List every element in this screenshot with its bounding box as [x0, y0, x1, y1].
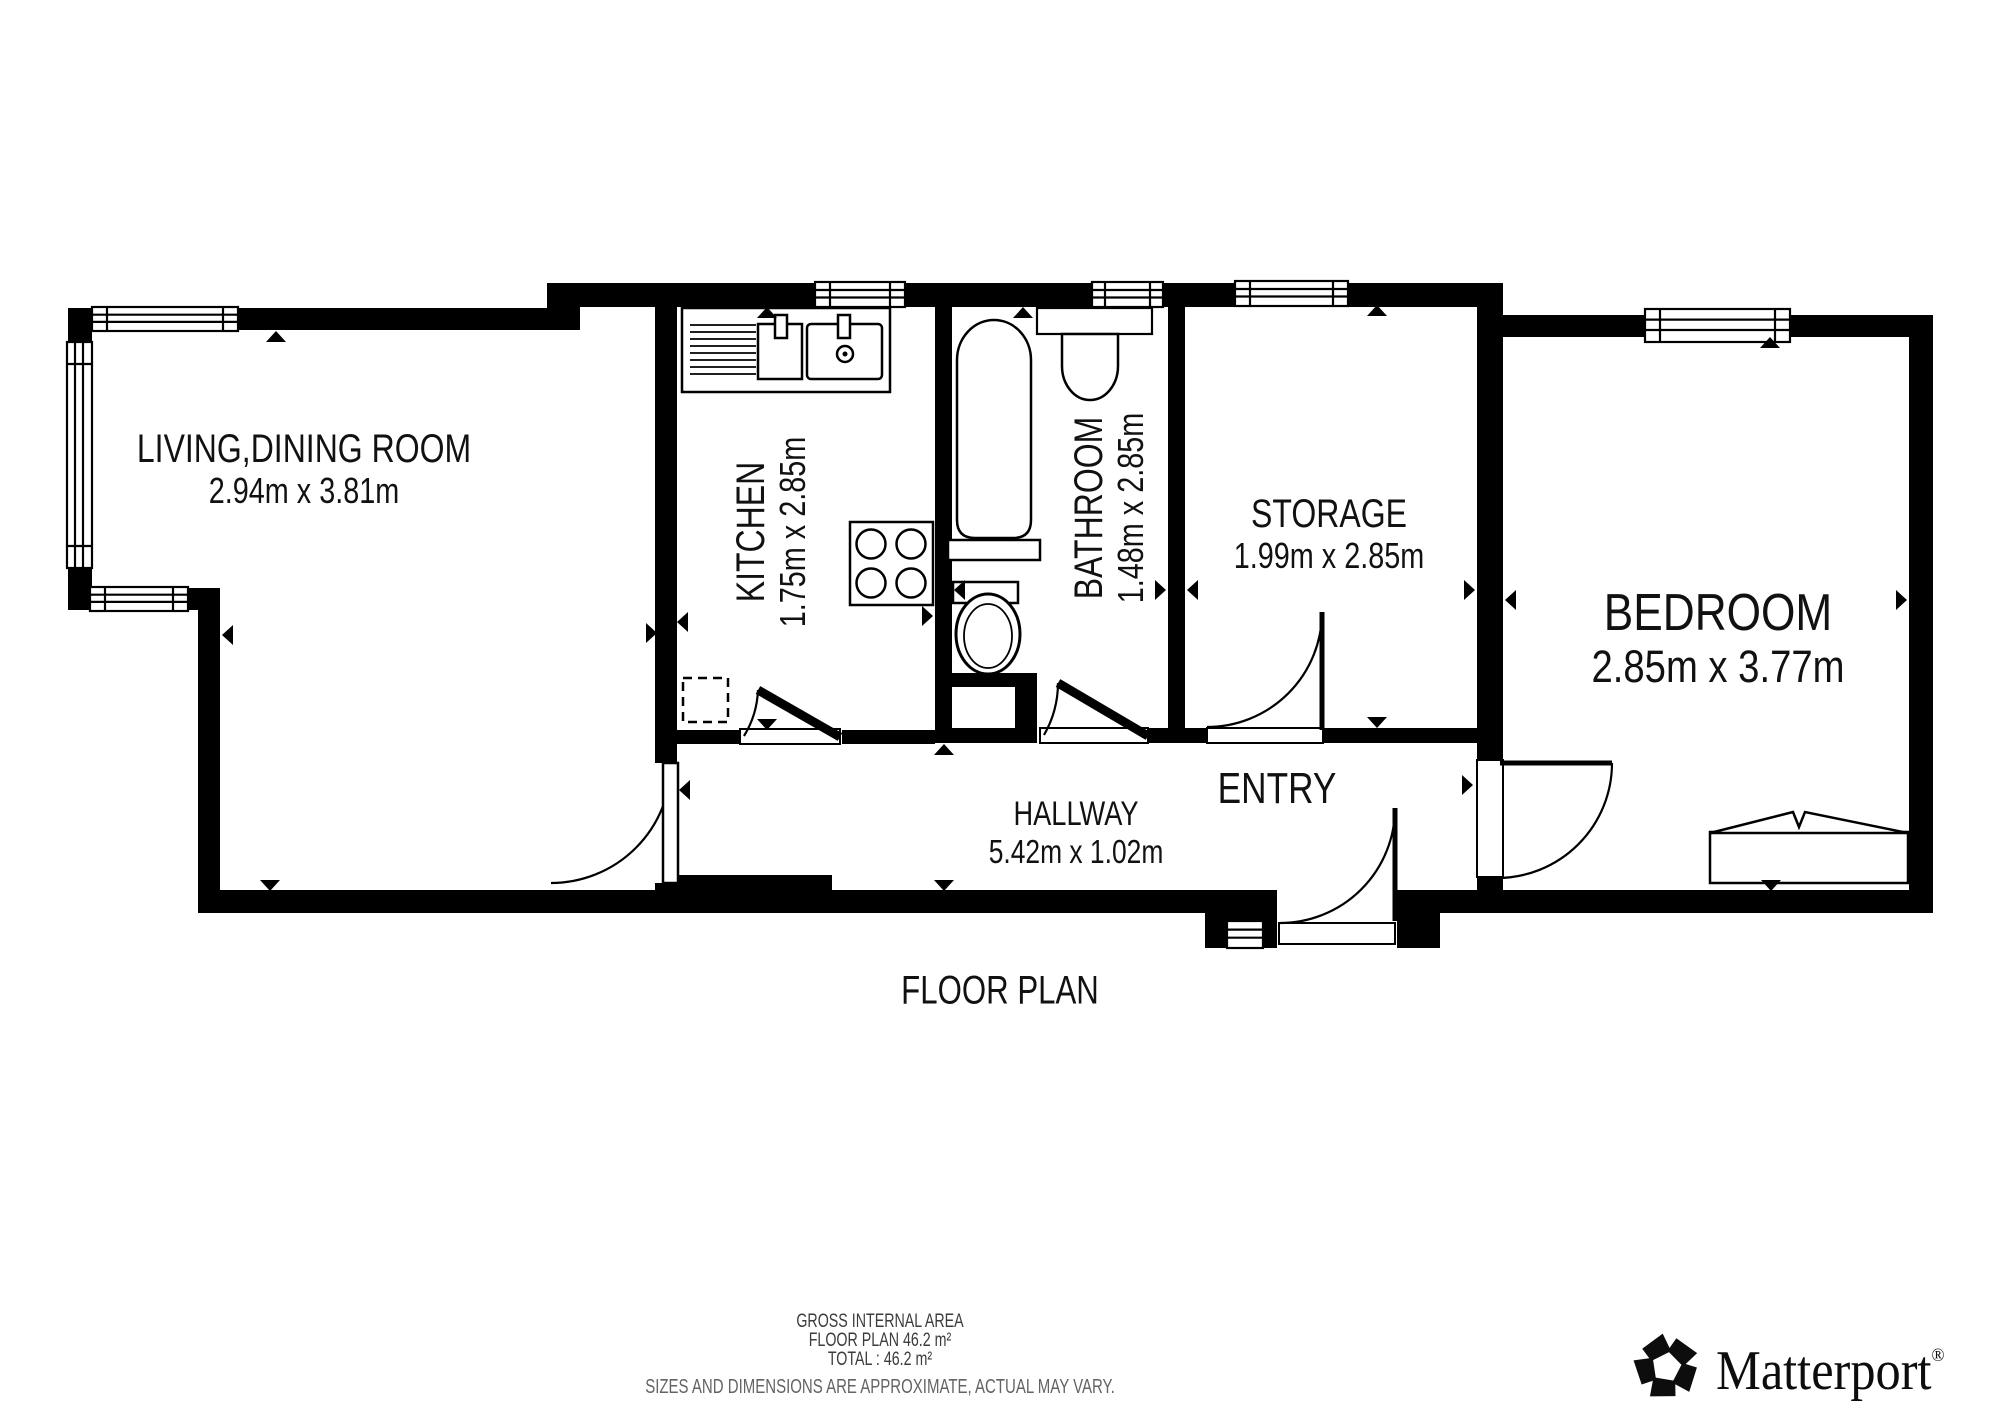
- room-name: BATHROOM: [1067, 413, 1111, 604]
- window-living-bottom: [90, 587, 188, 611]
- room-dims: 1.75m x 2.85m: [773, 437, 813, 628]
- room-name: STORAGE: [1234, 492, 1425, 536]
- arrow-living-left: [222, 625, 233, 645]
- room-label-hallway: HALLWAY 5.42m x 1.02m: [989, 795, 1164, 871]
- brand-logo: Matterport®: [1626, 1318, 1970, 1409]
- bathtub: [948, 320, 1040, 560]
- room-label-storage: STORAGE 1.99m x 2.85m: [1234, 492, 1425, 576]
- matterport-logo-icon: [1626, 1326, 1704, 1402]
- door-bathroom: [1040, 683, 1148, 743]
- room-label-living: LIVING,DINING ROOM 2.94m x 3.81m: [137, 427, 471, 511]
- arrow-hallway-right: [1462, 775, 1473, 795]
- window-storage: [1235, 281, 1348, 306]
- gross-internal-area-label: GROSS INTERNAL AREA: [645, 1312, 1115, 1331]
- room-label-bathroom: BATHROOM 1.48m x 2.85m: [1067, 413, 1151, 604]
- arrow-storage-down: [1367, 717, 1387, 728]
- arrow-bathroom-right: [1155, 580, 1166, 600]
- room-dims: 2.94m x 3.81m: [137, 471, 471, 511]
- room-name: LIVING,DINING ROOM: [137, 427, 471, 471]
- room-dims: 1.99m x 2.85m: [1234, 536, 1425, 576]
- room-label-entry: ENTRY: [1218, 766, 1337, 812]
- window-living-top: [92, 307, 238, 331]
- bed: [1710, 812, 1908, 883]
- kitchen-sink-counter: [682, 308, 890, 392]
- room-dims: 2.85m x 3.77m: [1591, 641, 1844, 693]
- floor-plan-area-value: FLOOR PLAN 46.2 m²: [645, 1331, 1115, 1350]
- room-name: KITCHEN: [729, 437, 773, 628]
- arrow-storage-right: [1464, 580, 1475, 600]
- window-bedroom: [1645, 309, 1790, 342]
- arrow-bedroom-right: [1896, 590, 1907, 610]
- room-name: BEDROOM: [1591, 585, 1844, 641]
- arrow-kitchen-right: [922, 606, 933, 626]
- arrow-hallway-left: [679, 780, 690, 800]
- door-living-hallway: [551, 763, 678, 883]
- arrow-storage-left: [1187, 580, 1198, 600]
- room-dims: 1.48m x 2.85m: [1111, 413, 1151, 604]
- arrow-bathroom-up: [1013, 307, 1033, 318]
- arrow-bedroom-down: [1761, 880, 1781, 891]
- window-kitchen: [815, 282, 905, 307]
- registered-mark: ®: [1932, 1345, 1945, 1366]
- room-dims: 5.42m x 1.02m: [989, 833, 1164, 871]
- window-living-left: [67, 342, 92, 568]
- arrow-bedroom-left: [1505, 590, 1516, 610]
- floor-plan-drawing: [0, 0, 2000, 1414]
- arrow-kitchen-left: [677, 612, 688, 632]
- room-name: HALLWAY: [989, 795, 1164, 833]
- window-bathroom: [1092, 282, 1163, 307]
- door-bedroom: [1477, 760, 1612, 878]
- disclaimer-text: SIZES AND DIMENSIONS ARE APPROXIMATE, AC…: [645, 1376, 1115, 1398]
- total-area-value: TOTAL : 46.2 m²: [645, 1350, 1115, 1369]
- door-entry: [1277, 808, 1397, 948]
- door-storage: [1207, 612, 1323, 743]
- dashed-appliance: [683, 678, 728, 722]
- room-label-kitchen: KITCHEN 1.75m x 2.85m: [729, 437, 813, 628]
- room-name: ENTRY: [1218, 766, 1337, 812]
- arrow-living-down: [260, 880, 280, 891]
- window-entry-sidelight: [1227, 921, 1263, 948]
- stove: [850, 522, 933, 605]
- footer: GROSS INTERNAL AREA FLOOR PLAN 46.2 m² T…: [645, 1312, 1115, 1398]
- brand-name-text: Matterport: [1716, 1340, 1932, 1402]
- brand-name: Matterport®: [1716, 1318, 1945, 1409]
- arrow-hallway-up: [934, 744, 954, 755]
- arrow-hallway-down: [934, 880, 954, 891]
- page-title: FLOOR PLAN: [901, 969, 1099, 1014]
- washbasin: [1037, 308, 1152, 400]
- floor-plan-page: LIVING,DINING ROOM 2.94m x 3.81m KITCHEN…: [0, 0, 2000, 1414]
- room-label-bedroom: BEDROOM 2.85m x 3.77m: [1591, 585, 1844, 693]
- arrow-living-up: [266, 331, 286, 342]
- door-kitchen: [740, 690, 840, 744]
